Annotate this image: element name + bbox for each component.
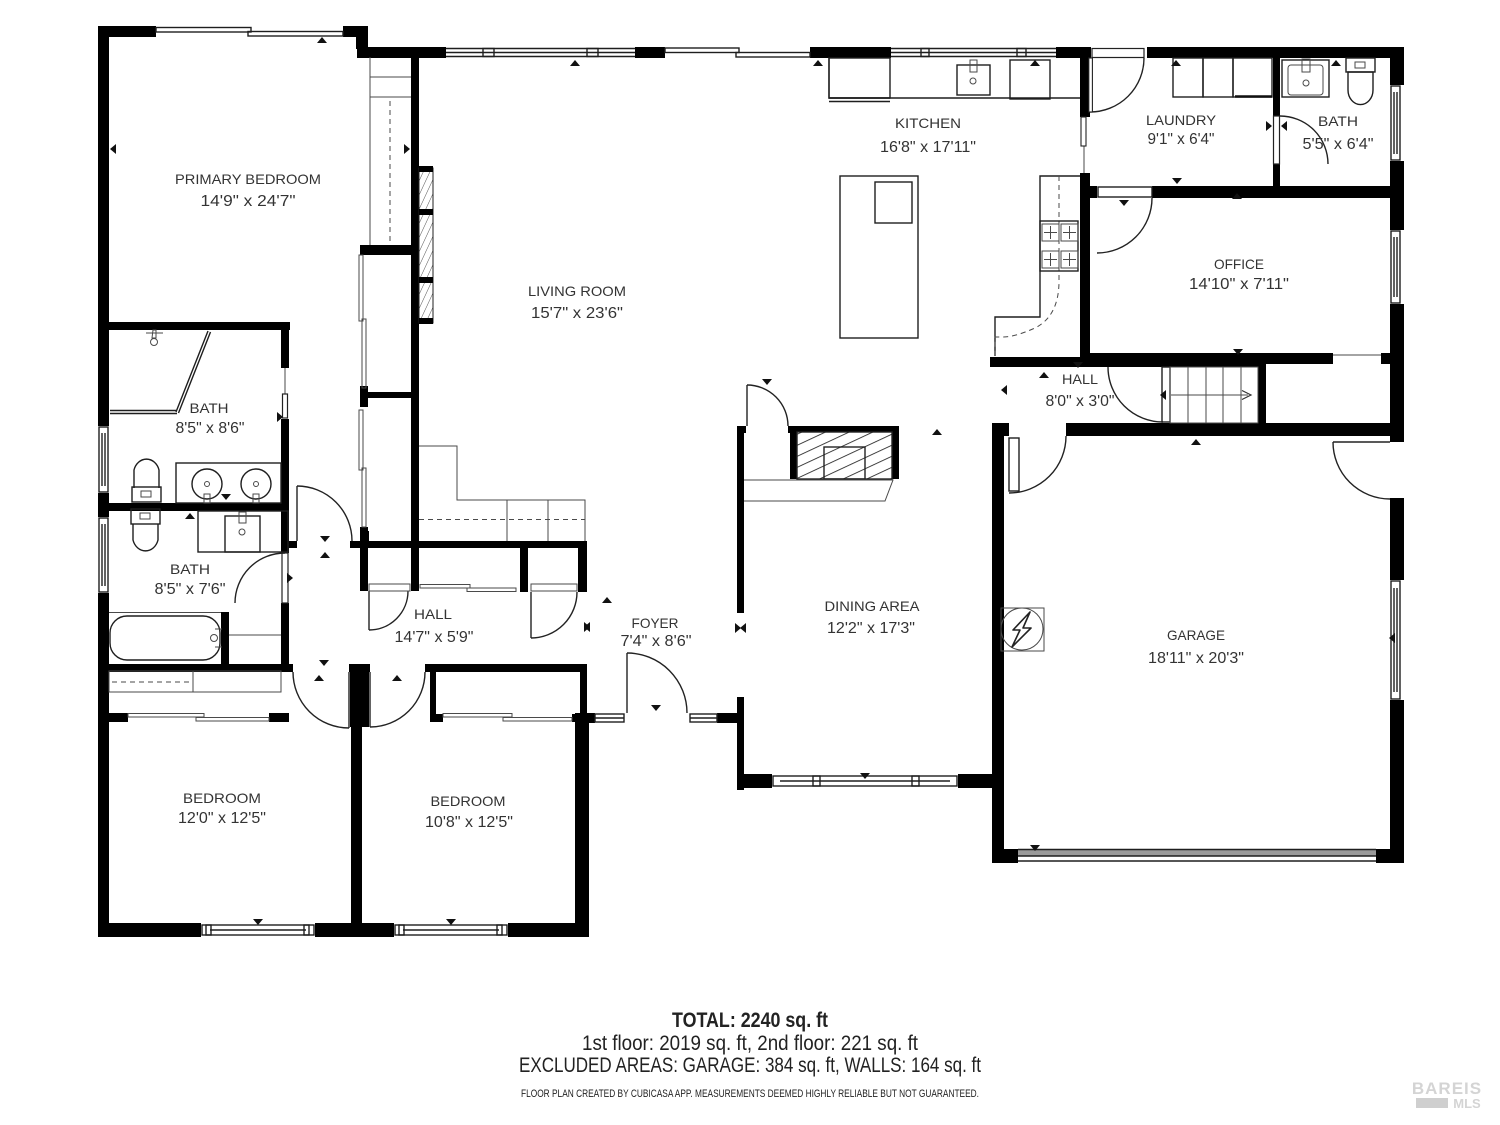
svg-text:FOYER: FOYER [632,615,679,631]
svg-text:8'0" x 3'0": 8'0" x 3'0" [1046,393,1115,410]
svg-text:TOTAL: 2240 sq. ft: TOTAL: 2240 sq. ft [672,1009,828,1032]
svg-text:14'7" x 5'9": 14'7" x 5'9" [395,629,474,646]
svg-text:12'2" x 17'3": 12'2" x 17'3" [827,620,915,637]
svg-text:HALL: HALL [1062,371,1098,387]
svg-text:FLOOR PLAN CREATED BY CUBICASA: FLOOR PLAN CREATED BY CUBICASA APP. MEAS… [521,1088,979,1100]
svg-text:KITCHEN: KITCHEN [895,115,961,131]
svg-text:EXCLUDED AREAS: GARAGE: 384 sq: EXCLUDED AREAS: GARAGE: 384 sq. ft, WALL… [519,1054,981,1077]
svg-text:LIVING ROOM: LIVING ROOM [528,283,626,299]
svg-text:PRIMARY BEDROOM: PRIMARY BEDROOM [175,171,321,187]
svg-text:10'8" x 12'5": 10'8" x 12'5" [425,814,513,831]
svg-text:8'5" x 7'6": 8'5" x 7'6" [155,581,226,598]
svg-text:7'4" x 8'6": 7'4" x 8'6" [621,633,692,650]
svg-text:BATH: BATH [1318,113,1358,129]
svg-text:DINING AREA: DINING AREA [825,598,921,614]
svg-text:HALL: HALL [414,606,452,622]
svg-text:GARAGE: GARAGE [1167,627,1225,643]
svg-text:MLS: MLS [1453,1096,1481,1111]
svg-text:12'0" x 12'5": 12'0" x 12'5" [178,810,266,827]
svg-text:OFFICE: OFFICE [1214,256,1264,272]
svg-text:5'5" x 6'4": 5'5" x 6'4" [1303,136,1374,153]
svg-text:14'9" x 24'7": 14'9" x 24'7" [201,193,296,210]
svg-text:9'1" x 6'4": 9'1" x 6'4" [1148,131,1215,148]
svg-text:1st floor: 2019 sq. ft, 2nd fl: 1st floor: 2019 sq. ft, 2nd floor: 221 s… [582,1032,918,1055]
svg-text:LAUNDRY: LAUNDRY [1146,112,1217,128]
svg-text:BATH: BATH [170,561,210,577]
svg-text:BATH: BATH [190,400,229,416]
svg-text:8'5" x 8'6": 8'5" x 8'6" [176,420,245,437]
svg-text:14'10" x 7'11": 14'10" x 7'11" [1189,276,1289,293]
svg-text:BEDROOM: BEDROOM [431,793,506,809]
svg-text:15'7" x 23'6": 15'7" x 23'6" [531,305,623,322]
svg-text:16'8" x 17'11": 16'8" x 17'11" [880,139,976,156]
svg-text:BEDROOM: BEDROOM [183,790,261,806]
svg-text:18'11" x 20'3": 18'11" x 20'3" [1148,650,1244,667]
